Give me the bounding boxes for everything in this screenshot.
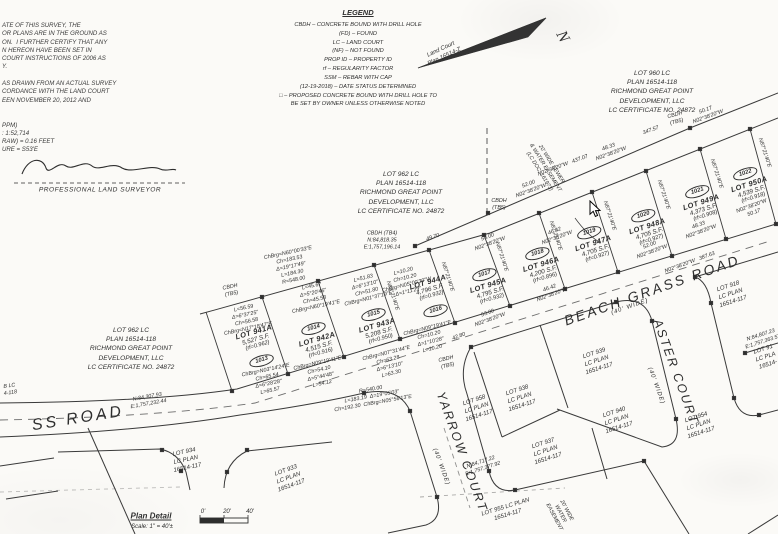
annotation: N:84,717.22 E:1,757,377.92 [462,454,501,478]
annotation-layer: N02°38'20"W 437.07347.57CBDH (TB5)CBDH (… [0,0,778,534]
south-lot-label: LOT 938 LC PLAN 16514-117 [503,384,537,415]
south-lot-label: LOT 934 LC PLAN 16514-117 [170,447,202,476]
south-lot-label: LOT 939 LC PLAN 16514-117 [580,347,614,378]
south-lot-label: LOT 933 LC PLAN 16514-117 [272,463,307,495]
abutter-label: LOT 962 LC PLAN 16514-118 RICHMOND GREAT… [358,170,445,216]
annotation: 49.70 [426,233,441,244]
annotation: 347.57 [642,125,660,137]
annotation: ChBrg=N09°19'41"E Ch=54.10 Δ=5°44'48" L=… [293,355,347,393]
survey-plan-page: N ATE OF THIS SURVEY, THEOR PLANS ARE IN… [0,0,778,534]
annotation: N02°38'20"W 387.63 [664,251,716,276]
annotation: 53.00 N02°38'20"W [472,305,507,329]
annotation: 48.33 N02°38'20"W [593,139,628,163]
abutter-label: LOT 962 LC PLAN 16514-118 RICHMOND GREAT… [88,326,175,372]
annotation: ChBrg=N09°19'41"E Ch=10.20 Δ=1°10'28" L=… [403,320,457,359]
annotation: CBDH (TB4) N:84,818.35 E:1,757,196.14 [364,231,401,252]
south-lot-label: LOT 91 LC PLA 16514- [753,344,778,373]
annotation: L=45.67 Δ=5°20'46" Ch=45.58 ChBrg=N60°19… [287,278,341,315]
annotation: 20' WIDE WATER EASEMENT [544,496,576,532]
south-lot-label: LOT 940 LC PLAN 16514-117 [600,406,634,437]
south-lot-label: LOT 954 LC PLAN 16514-117 [682,411,716,442]
annotation: N:84,307.93 E:1,757,232.44 [129,391,167,411]
south-lot-label: LOT 937 LC PLAN 16514-117 [529,437,563,468]
annotation: CBDH (TB5) [491,198,506,212]
abutter-label: LOT 960 LC PLAN 16514-118 RICHMOND GREAT… [609,69,696,115]
annotation: CBDH (TB5) [438,354,456,371]
annotation: CBDH (TB5) [222,283,240,300]
annotation: ChBrg=N60°00'33"E Ch=183.53 Δ=19°17'49" … [263,245,318,289]
parcel-lot-942a: 1014LOT 942A4,515 S.F.(rf=0.916) [292,311,339,360]
annotation: R=540.00 L=183.19 Δ=19°05'03" Ch=192.30 … [332,380,413,414]
south-lot-label: LOT 918 LC PLAN 16514-117 [714,280,748,311]
parcel-lot-941a: LOT 941A5,527 S.F.(rf=0.962)1013 [234,322,281,371]
prop-id-oval: 1016 [422,302,449,319]
south-lot-label: LOT 958 LC PLAN 16514-117 [460,394,494,425]
annotation: 46.42 N02°38'20"W [534,280,569,304]
mouse-cursor [589,200,605,219]
south-lot-label: LOT 955 LC PLAN 16514-117 [481,497,533,527]
annotation: B LC 4-118 [2,382,17,398]
